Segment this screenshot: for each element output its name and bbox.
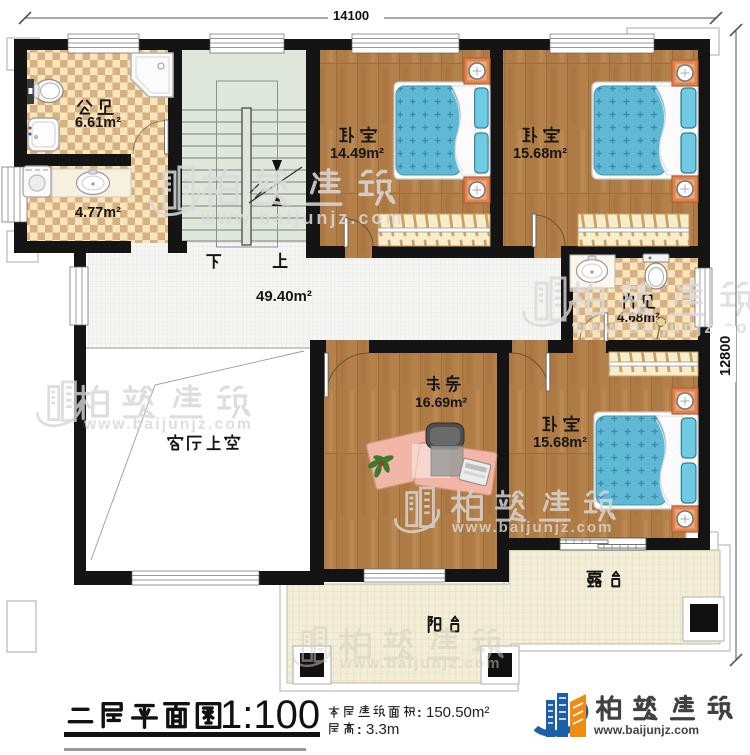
svg-text:15.68m²: 15.68m²	[513, 146, 567, 162]
svg-text::: :	[357, 721, 362, 737]
svg-text:16.69m²: 16.69m²	[415, 394, 467, 410]
svg-text:www.baijunjz.com: www.baijunjz.com	[593, 723, 699, 737]
svg-text:12800: 12800	[718, 336, 734, 376]
svg-text:15.68m²: 15.68m²	[533, 435, 587, 451]
svg-text:www.baijunjz.com: www.baijunjz.com	[451, 519, 613, 536]
svg-text:14100: 14100	[333, 8, 369, 23]
svg-text:www.baijunjz.com: www.baijunjz.com	[83, 416, 253, 433]
svg-text::: :	[417, 704, 422, 720]
svg-text:www.baijunjz.com: www.baijunjz.com	[200, 208, 404, 228]
svg-text:49.40m²: 49.40m²	[256, 288, 312, 305]
svg-text:14.49m²: 14.49m²	[330, 146, 384, 162]
svg-text:4.77m²: 4.77m²	[75, 205, 121, 221]
svg-text:150.50m²: 150.50m²	[426, 704, 489, 721]
svg-text:3.3m: 3.3m	[366, 721, 399, 738]
svg-text:6.61m²: 6.61m²	[75, 115, 121, 131]
svg-text:www.baijunjz.com: www.baijunjz.com	[339, 655, 501, 672]
svg-text:1:100: 1:100	[220, 693, 320, 737]
